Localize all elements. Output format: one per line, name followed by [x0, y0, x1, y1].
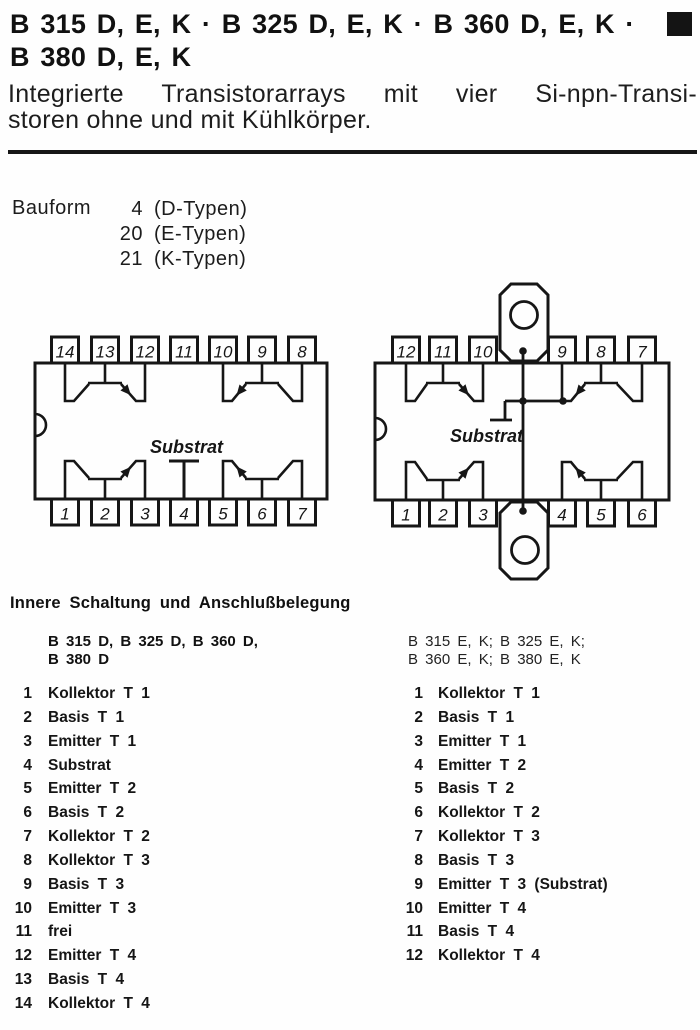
pin-number: 7 [391, 827, 423, 846]
pin-box-number: 2 [99, 505, 110, 524]
pin-number: 10 [0, 899, 32, 918]
pin-row: 6Basis T 2 [0, 803, 150, 827]
pin-box [430, 337, 457, 363]
pin-row: 12Emitter T 4 [0, 946, 150, 970]
pin-row: 6Kollektor T 2 [391, 803, 608, 827]
pin-function-label: Kollektor T 2 [438, 803, 540, 822]
pin-box-number: 2 [437, 506, 448, 525]
horizontal-rule [8, 150, 697, 154]
pin-row: 3Emitter T 1 [391, 732, 608, 756]
pin-number: 2 [391, 708, 423, 727]
pin-box [629, 500, 656, 526]
subtitle-line1: Integrierte Transistorarrays mit vier Si… [8, 80, 697, 109]
pin-row: 3Emitter T 1 [0, 732, 150, 756]
emitter-arrow [120, 467, 130, 478]
pin-row: 14Kollektor T 4 [0, 994, 150, 1018]
pin-function-label: Emitter T 2 [438, 756, 526, 775]
pin-box [549, 337, 576, 363]
pin-number: 1 [391, 684, 423, 703]
pin-function-label: frei [48, 922, 72, 941]
bauform-type: (E-Typen) [154, 222, 246, 247]
substrat-contact [169, 461, 199, 499]
npn-transistor-symbol [223, 363, 302, 401]
pin-box-number: 3 [140, 505, 150, 524]
pin-box-number: 7 [297, 505, 307, 524]
bauform-type: (D-Typen) [154, 197, 247, 222]
substrat-contact [490, 351, 563, 511]
pin-function-label: Substrat [48, 756, 111, 775]
pin-box-number: 8 [596, 343, 606, 362]
pin-number: 11 [0, 922, 32, 941]
pin-box-number: 1 [401, 506, 410, 525]
pin-number: 8 [0, 851, 32, 870]
pin-function-label: Kollektor T 3 [438, 827, 540, 846]
emitter-arrow [236, 384, 246, 395]
pin-box [629, 337, 656, 363]
pin-number: 12 [391, 946, 423, 965]
pin-box-number: 4 [179, 505, 188, 524]
pin-number: 12 [0, 946, 32, 965]
pin-box-number: 6 [637, 506, 647, 525]
pin-box [52, 337, 79, 363]
pin-number: 11 [391, 922, 423, 941]
pin-box [171, 499, 198, 525]
pin-function-label: Emitter T 4 [48, 946, 136, 965]
heatsink-tab-top [500, 284, 548, 361]
junction-dot [519, 347, 527, 355]
pin-row: 2Basis T 1 [0, 708, 150, 732]
pin-row: 9Basis T 3 [0, 875, 150, 899]
pin-box-number: 8 [297, 343, 307, 362]
pin-box-number: 10 [474, 343, 493, 362]
pin-row: 7Kollektor T 2 [0, 827, 150, 851]
pinout-list-ek-types: 1Kollektor T 12Basis T 13Emitter T 14Emi… [391, 684, 608, 970]
pin-box-number: 12 [136, 343, 155, 362]
page-title-line1: B 315 D, E, K · B 325 D, E, K · B 360 D,… [10, 9, 635, 40]
pin-row: 1Kollektor T 1 [0, 684, 150, 708]
pinout-right-subheading-line2: B 360 E, K; B 380 E, K [408, 651, 585, 669]
pin-box [588, 500, 615, 526]
pin-function-label: Basis T 4 [438, 922, 514, 941]
junction-dot [519, 397, 527, 405]
pin-box-number: 4 [557, 506, 566, 525]
pin-number: 8 [391, 851, 423, 870]
pin-row: 5Basis T 2 [391, 779, 608, 803]
pin-row: 11frei [0, 922, 150, 946]
pin-number: 14 [0, 994, 32, 1013]
pinout-list-d-types: 1Kollektor T 12Basis T 13Emitter T 14Sub… [0, 684, 150, 1018]
pin-box [430, 500, 457, 526]
emitter-arrow [458, 468, 468, 479]
emitter-arrow [458, 384, 468, 395]
pin-number: 9 [0, 875, 32, 894]
pin-function-label: Kollektor T 2 [48, 827, 150, 846]
pin-function-label: Kollektor T 4 [438, 946, 540, 965]
pin-box-number: 5 [596, 506, 606, 525]
pin-box [393, 500, 420, 526]
pin-row: 5Emitter T 2 [0, 779, 150, 803]
pin-function-label: Emitter T 3 (Substrat) [438, 875, 608, 894]
pin-box [393, 337, 420, 363]
pin-function-label: Kollektor T 4 [48, 994, 150, 1013]
pin-function-label: Basis T 4 [48, 970, 124, 989]
pin-function-label: Emitter T 3 [48, 899, 136, 918]
pin-row: 4Substrat [0, 756, 150, 780]
pin-function-label: Basis T 2 [438, 779, 514, 798]
npn-transistor-symbol [562, 363, 642, 401]
junction-dot [519, 507, 527, 515]
pin-box [210, 337, 237, 363]
pin-function-label: Basis T 3 [48, 875, 124, 894]
pin-row: 7Kollektor T 3 [391, 827, 608, 851]
pin-box [92, 337, 119, 363]
pin-function-label: Kollektor T 1 [438, 684, 540, 703]
pin-function-label: Basis T 1 [438, 708, 514, 727]
pin-row: 10Emitter T 4 [391, 899, 608, 923]
emitter-arrow [120, 384, 130, 395]
dip14-package-d-types [35, 363, 327, 499]
pin-box [588, 337, 615, 363]
npn-transistor-symbol [65, 461, 145, 499]
pin-number: 5 [0, 779, 32, 798]
pin-number: 6 [0, 803, 32, 822]
pin-box [210, 499, 237, 525]
pin-row: 12Kollektor T 4 [391, 946, 608, 970]
pin-number: 7 [0, 827, 32, 846]
emitter-arrow [575, 467, 585, 478]
pin-number: 3 [0, 732, 32, 751]
pin-row: 13Basis T 4 [0, 970, 150, 994]
bauform-row: 4(D-Typen) [113, 197, 247, 222]
pinout-right-subheading: B 315 E, K; B 325 E, K; B 360 E, K; B 38… [408, 633, 585, 668]
emitter-arrow [236, 466, 246, 477]
emitter-arrow [575, 384, 585, 395]
pinout-left-subheading: B 315 D, B 325 D, B 360 D, B 380 D [48, 633, 258, 668]
pin-function-label: Kollektor T 3 [48, 851, 150, 870]
pin-number: 2 [0, 708, 32, 727]
pinout-left-subheading-line1: B 315 D, B 325 D, B 360 D, [48, 633, 258, 651]
pin-row: 10Emitter T 3 [0, 899, 150, 923]
pin-box [92, 499, 119, 525]
pin-box [52, 499, 79, 525]
pin-function-label: Basis T 3 [438, 851, 514, 870]
pinout-section-heading: Innere Schaltung und Anschlußbelegung [10, 594, 351, 613]
pin-function-label: Basis T 2 [48, 803, 124, 822]
pin-box [289, 499, 316, 525]
pin-box-number: 11 [175, 343, 193, 362]
pin-box [549, 500, 576, 526]
pin-box-number: 9 [257, 343, 267, 362]
pin-number: 9 [391, 875, 423, 894]
pin1-index-notch [35, 414, 46, 436]
pin-box [249, 499, 276, 525]
bauform-row: 21(K-Typen) [113, 247, 247, 272]
pin-box-number: 13 [96, 343, 115, 362]
junction-dot [559, 397, 567, 405]
npn-transistor-symbol [223, 461, 302, 499]
pin-box-number: 10 [214, 343, 233, 362]
pin-row: 2Basis T 1 [391, 708, 608, 732]
pin-box-number: 11 [434, 343, 452, 362]
pin-row: 8Kollektor T 3 [0, 851, 150, 875]
pin-number: 10 [391, 899, 423, 918]
pin-number: 1 [0, 684, 32, 703]
pin-box [249, 337, 276, 363]
npn-transistor-symbol [65, 363, 145, 401]
npn-transistor-symbol [406, 363, 483, 401]
thumb-index-marker [667, 12, 692, 36]
pin-box-number: 6 [257, 505, 267, 524]
pin-box [132, 499, 159, 525]
pin-box [171, 337, 198, 363]
bauform-label: Bauform [12, 197, 91, 220]
pinout-right-subheading-line1: B 315 E, K; B 325 E, K; [408, 633, 585, 651]
bauform-rows: 4(D-Typen)20(E-Typen)21(K-Typen) [113, 197, 247, 272]
pin-function-label: Emitter T 2 [48, 779, 136, 798]
pin-number: 5 [391, 779, 423, 798]
datasheet-page: B 315 D, E, K · B 325 D, E, K · B 360 D,… [0, 0, 700, 1030]
pin-box-number: 12 [397, 343, 416, 362]
pin-number: 3 [391, 732, 423, 751]
pin-box [289, 337, 316, 363]
pin-box-number: 1 [60, 505, 69, 524]
pin-row: 11Basis T 4 [391, 922, 608, 946]
subtitle-line2: storen ohne und mit Kühlkörper. [8, 106, 697, 135]
bauform-number: 20 [113, 222, 143, 247]
pin-function-label: Emitter T 1 [48, 732, 136, 751]
pin-box-number: 7 [637, 343, 647, 362]
pin-function-label: Emitter T 4 [438, 899, 526, 918]
pin-row: 9Emitter T 3 (Substrat) [391, 875, 608, 899]
pin-row: 4Emitter T 2 [391, 756, 608, 780]
bauform-number: 4 [113, 197, 143, 222]
pin1-index-notch [375, 418, 386, 440]
mounting-hole-top [511, 302, 538, 329]
pin-number: 4 [0, 756, 32, 775]
page-title-line2: B 380 D, E, K [10, 42, 191, 73]
bauform-row: 20(E-Typen) [113, 222, 247, 247]
mounting-hole-bottom [512, 537, 539, 564]
pin-function-label: Basis T 1 [48, 708, 124, 727]
pin-function-label: Kollektor T 1 [48, 684, 150, 703]
pin-function-label: Emitter T 1 [438, 732, 526, 751]
heatsink-tab-bottom [500, 502, 548, 579]
bauform-type: (K-Typen) [154, 247, 246, 272]
pin-row: 1Kollektor T 1 [391, 684, 608, 708]
npn-transistor-symbol [406, 462, 483, 500]
pin-number: 13 [0, 970, 32, 989]
dip12-package-ek-types [375, 363, 669, 500]
pin-box [470, 500, 497, 526]
pin-box-number: 14 [56, 343, 75, 362]
pin-row: 8Basis T 3 [391, 851, 608, 875]
pin-box-number: 5 [218, 505, 228, 524]
substrat-label: Substrat [450, 426, 524, 446]
pin-number: 6 [391, 803, 423, 822]
bauform-number: 21 [113, 247, 143, 272]
pin-box-number: 9 [557, 343, 567, 362]
pin-box [132, 337, 159, 363]
pin-box-number: 3 [478, 506, 488, 525]
npn-transistor-symbol [562, 462, 642, 500]
pin-number: 4 [391, 756, 423, 775]
pinout-left-subheading-line2: B 380 D [48, 651, 258, 669]
pin-box [470, 337, 497, 363]
substrat-label: Substrat [150, 437, 224, 457]
